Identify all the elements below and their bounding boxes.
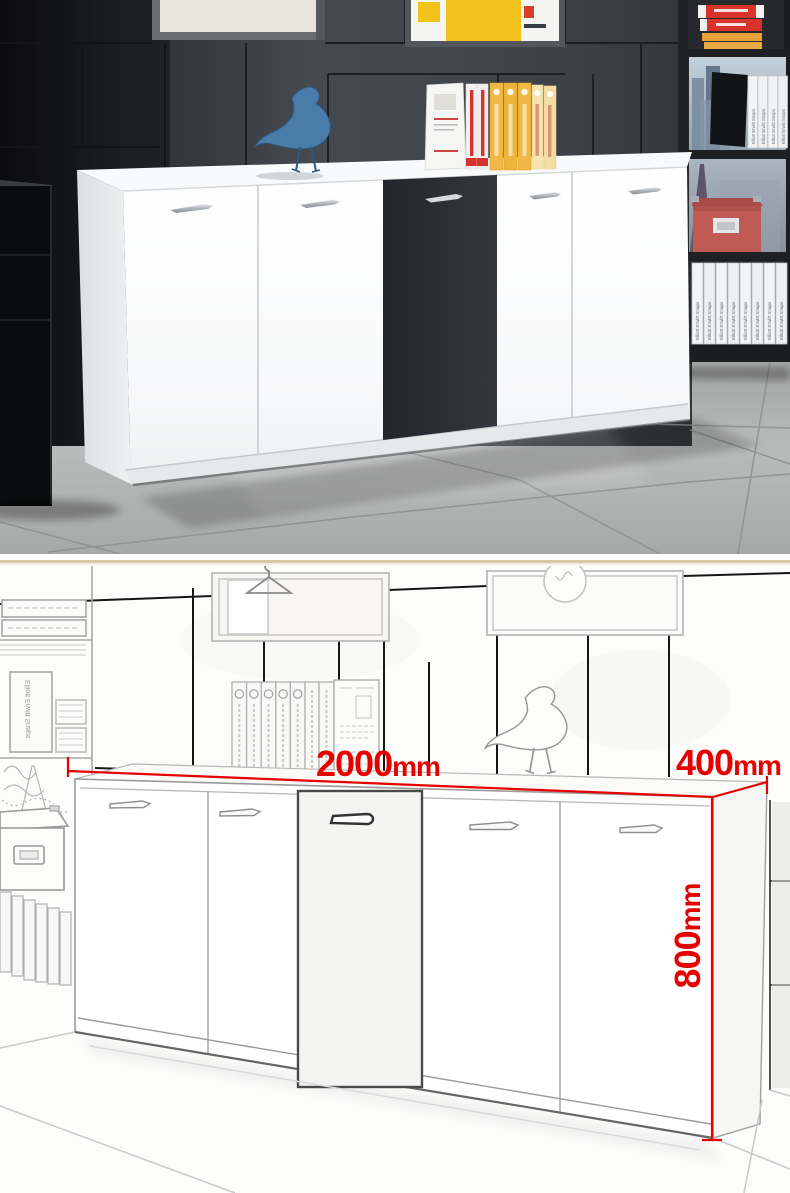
sketch-middle-door — [298, 791, 422, 1087]
orange-book — [704, 42, 762, 49]
books-on-cabinet — [425, 83, 556, 170]
section-divider — [0, 554, 790, 566]
bookshelf: Elliott Erwitt Snaps Elliott Erwitt Snap… — [678, 0, 790, 364]
book-spine-label: Elliott Erwitt Snaps — [743, 301, 748, 340]
book-spine-label: Elliott Erwitt Snaps — [779, 301, 784, 340]
elliott-books-row-top: Elliott Erwitt Snaps Elliott Erwitt Snap… — [748, 76, 788, 148]
sketch-book-spine-label: Elliott Erwitt Snaps — [25, 680, 32, 739]
book-spine-label: Elliott Erwitt Snaps — [751, 109, 756, 144]
sketch-section: Elliott Erwitt Snaps — [0, 566, 790, 1193]
yellow-books — [490, 83, 531, 170]
book-spine-label: Elliott Erwitt Snaps — [695, 301, 700, 340]
cabinet-left-side — [77, 170, 131, 484]
book-spine-label: Elliott Erwitt Snaps — [719, 301, 724, 340]
red-storage-box — [691, 196, 763, 252]
book-spine-label: Elliott Erwitt Snaps — [731, 301, 736, 340]
orange-book — [702, 33, 762, 41]
book-spine-label: Elliott Erwitt Snaps — [771, 109, 776, 144]
sketch-cabinet-side — [713, 782, 767, 1138]
book-spine-label: Elliott Erwitt Snaps — [707, 301, 712, 340]
product-detail-image: Elliott Erwitt Snaps Elliott Erwitt Snap… — [0, 0, 790, 1193]
black-book — [710, 72, 748, 147]
photo-section: Elliott Erwitt Snaps Elliott Erwitt Snap… — [0, 0, 790, 554]
red-books-stack — [698, 5, 764, 49]
book-spine-label: Elliott Erwitt Snaps — [781, 109, 786, 144]
artwork-yellow-block — [446, 0, 521, 41]
sketch-storage-box — [0, 806, 68, 890]
sketch-middle-door-handle — [331, 814, 373, 824]
black-door — [383, 175, 497, 440]
book-spine-label: Elliott Erwitt Snaps — [767, 301, 772, 340]
pale-books — [532, 85, 556, 169]
red-spine-books — [466, 84, 488, 169]
sketch-picture-frame-b — [487, 566, 683, 635]
picture-frame-a — [152, 0, 325, 40]
sketch-picture-frame-a — [212, 573, 389, 641]
book-spine-label: Elliott Erwitt Snaps — [755, 301, 760, 340]
picture-frame-b — [405, 0, 565, 47]
book-spine-label: Elliott Erwitt Snaps — [761, 109, 766, 144]
